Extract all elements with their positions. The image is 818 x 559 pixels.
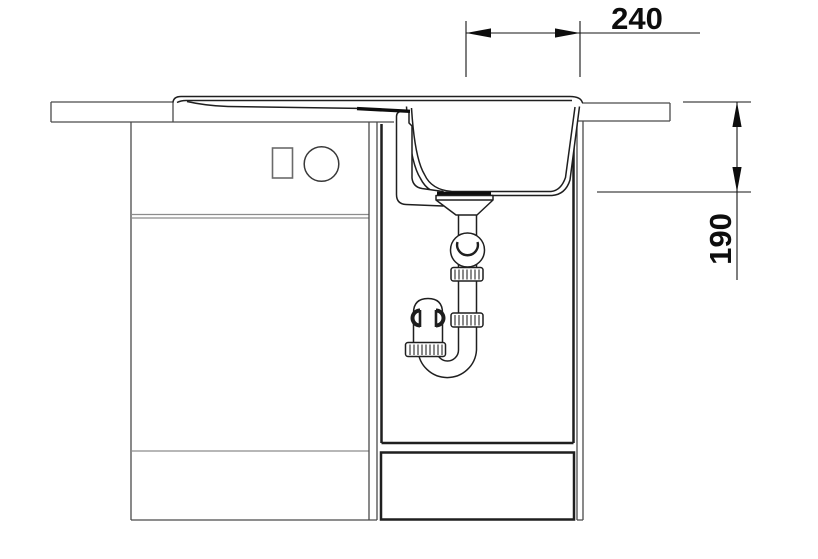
switch-symbol-rect [273,148,293,178]
base-cabinet-left [131,122,377,520]
dim-240-arrow-left [466,28,491,37]
knob-symbol-circle [304,147,339,182]
sink-rim-inner-line [177,101,572,103]
union-nut-outlet [406,343,446,357]
drawer-divider-line [131,215,369,219]
plinth-panel [381,453,574,520]
countertop-left-slab [51,102,394,122]
countertop-right-slab [578,103,670,121]
union-nut-middle [451,313,483,327]
union-nut-upper [451,268,483,282]
dim-190-extension-lines [597,102,751,192]
dim-240-label: 240 [611,1,663,36]
dim-240-extension-lines [466,21,580,77]
sink-bowl [357,104,580,206]
dim-190-arrow-bottom [732,167,741,192]
ball-joint [451,233,485,267]
rim-bowl-junction-line [357,109,410,112]
drainboard-surface-line [187,102,357,109]
cabinet-right-wall [577,121,583,520]
dim-190-label: 190 [703,213,738,265]
dim-240-arrow-right [555,28,580,37]
technical-drawing-canvas: 240 190 [0,0,818,559]
siphon-trap [406,196,494,378]
bowl-fill [407,104,580,196]
dim-190-arrow-top [732,102,741,127]
outlet-cap [414,299,443,344]
dimension-240: 240 [466,1,700,77]
dimension-190: 190 [597,102,751,280]
cabinet-partition-wall [369,122,377,520]
drain-flange [436,196,493,216]
